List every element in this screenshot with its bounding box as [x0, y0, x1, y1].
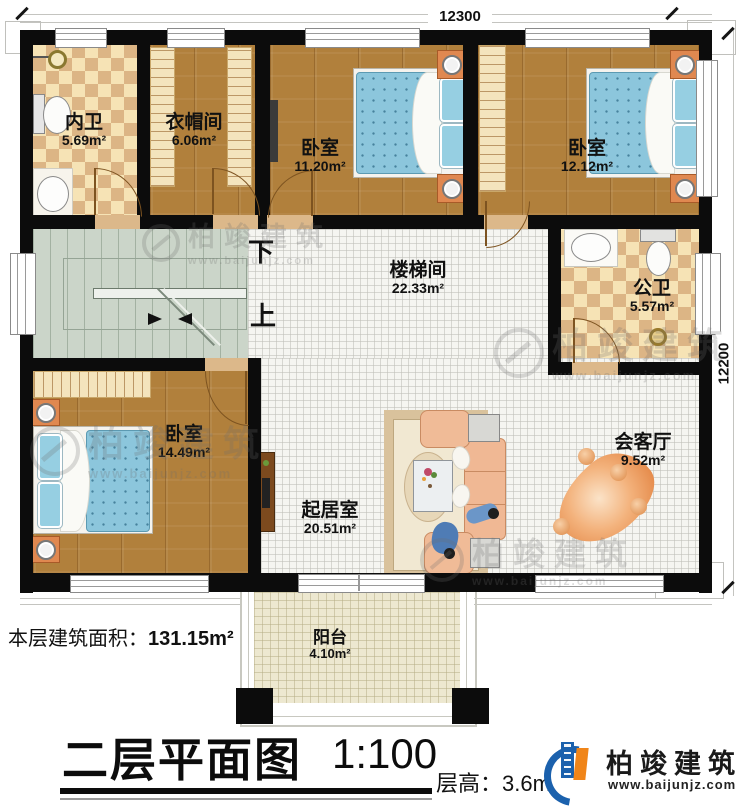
living-armchair-top — [420, 410, 470, 448]
door-leaf-neiwei — [94, 168, 96, 215]
bedroom3-pillow-1 — [38, 434, 62, 480]
plan-scale: 1:100 — [332, 730, 437, 778]
logo-company-name: 柏竣建筑 — [606, 742, 742, 781]
stairs-arrow-left — [148, 313, 162, 325]
bedroom2-wardrobe — [479, 45, 506, 192]
living-side-table-bottom — [470, 538, 500, 568]
room-name: 楼梯间 — [358, 260, 478, 281]
window-reception-bottom — [535, 575, 664, 593]
neiwei-sink-basin — [37, 176, 69, 212]
room-label-yimaojian: 衣帽间 6.06m² — [134, 112, 254, 149]
floor-area-note: 本层建筑面积：131.15m² — [8, 622, 234, 651]
wall-gongwei-left — [548, 215, 561, 375]
reception-pouf-3 — [630, 498, 647, 515]
room-name: 起居室 — [270, 500, 390, 521]
door-leaf-bedroom1 — [311, 170, 313, 216]
top-dimension-line — [20, 14, 712, 15]
person-standing-head — [444, 548, 455, 559]
room-name: 衣帽间 — [134, 112, 254, 133]
room-label-stairhall: 楼梯间 22.33m² — [358, 260, 478, 297]
window-bedroom1-top — [305, 28, 420, 48]
room-name: 阳台 — [270, 628, 390, 647]
wall-yimaojian-bedroom1 — [255, 45, 270, 215]
living-coffee-table — [413, 460, 453, 512]
window-bedroom2-right — [696, 60, 718, 197]
room-label-neiwei: 内卫 5.69m² — [24, 112, 144, 149]
bedroom3-wardrobe — [33, 371, 151, 398]
title-underline-thin — [60, 798, 432, 800]
bottom-eave-line-left-1 — [20, 598, 240, 599]
living-tv-plant — [263, 460, 269, 466]
gongwei-floor-drain — [649, 328, 667, 346]
room-name: 卧室 — [260, 138, 380, 159]
window-yimaojian-top — [167, 28, 225, 48]
dimension-top-value: 12300 — [428, 8, 492, 25]
balcony-sliding-door — [298, 574, 425, 593]
stairs-arrow-right — [178, 313, 192, 325]
person-on-sofa-head — [488, 508, 499, 519]
bedroom1-bed-sheet — [412, 72, 442, 174]
door-gap-neiwei — [95, 215, 140, 229]
neiwei-towel-ring — [48, 50, 67, 69]
balcony-column-right — [452, 688, 489, 724]
bedroom2-bed-sheet — [645, 72, 675, 174]
room-area: 11.20m² — [260, 159, 380, 175]
room-area: 22.33m² — [358, 281, 478, 297]
stairs-down-label: 下 — [244, 238, 278, 267]
floor-plan-canvas: 12300 12200 下 上 — [0, 0, 750, 806]
bottom-eave-line-left-2 — [20, 604, 240, 605]
room-label-balcony: 阳台 4.10m² — [270, 628, 390, 662]
wall-bedroom3-living — [248, 358, 261, 573]
top-eave-line — [20, 22, 712, 23]
room-label-bedroom1: 卧室 11.20m² — [260, 138, 380, 175]
room-name: 卧室 — [527, 138, 647, 159]
dimension-right-value: 12200 — [716, 332, 733, 396]
reception-pouf-4 — [553, 518, 570, 535]
room-area: 12.12m² — [527, 159, 647, 175]
door-gap-bedroom3 — [205, 358, 248, 371]
living-tv — [262, 478, 270, 508]
room-area: 5.57m² — [592, 299, 712, 315]
gongwei-sink-basin — [571, 233, 611, 262]
room-name: 内卫 — [24, 112, 144, 133]
room-area: 6.06m² — [134, 133, 254, 149]
right-dimension-line — [733, 30, 734, 596]
room-label-reception: 会客厅 9.52m² — [583, 432, 703, 469]
living-sofa-main — [464, 438, 506, 540]
room-area: 9.52m² — [583, 453, 703, 469]
bottom-eave-line-right-2 — [474, 604, 712, 605]
bedroom3-bed-sheet — [60, 430, 90, 532]
window-neiwei-top — [55, 28, 107, 48]
room-name: 卧室 — [124, 424, 244, 445]
bedroom3-nightstand-bottom — [31, 536, 60, 563]
room-area: 14.49m² — [124, 445, 244, 461]
room-name: 公卫 — [592, 278, 712, 299]
door-leaf-yimaojian — [212, 168, 214, 214]
floor-area-value: 131.15m² — [148, 628, 234, 650]
title-underline-thick — [60, 788, 432, 794]
balcony-column-left — [236, 688, 273, 724]
balcony-sliding-door-divider — [358, 574, 360, 591]
room-name: 会客厅 — [583, 432, 703, 453]
bedroom3-pillow-2 — [38, 482, 62, 528]
room-label-bedroom3: 卧室 14.49m² — [124, 424, 244, 461]
room-area: 20.51m² — [270, 521, 390, 537]
room-area: 5.69m² — [24, 133, 144, 149]
living-side-table-top — [468, 414, 500, 442]
room-label-bedroom2: 卧室 12.12m² — [527, 138, 647, 175]
living-table-flowers — [424, 468, 432, 476]
floor-area-label: 本层建筑面积： — [8, 628, 148, 650]
logo-website: www.baijunjz.com — [608, 777, 736, 792]
stairs-up-label: 上 — [246, 302, 280, 331]
window-bedroom3-bottom — [70, 575, 209, 593]
door-leaf-bedroom2 — [485, 201, 487, 246]
window-stairs-left — [10, 253, 36, 335]
bedroom3-nightstand-top — [31, 399, 60, 426]
floor-height-note: 层高：3.6m — [436, 766, 551, 798]
room-label-gongwei: 公卫 5.57m² — [592, 278, 712, 315]
door-leaf-bedroom3 — [245, 371, 247, 424]
logo-building-blue-icon — [561, 742, 574, 778]
gongwei-toilet-bowl — [646, 241, 671, 276]
room-area: 4.10m² — [270, 647, 390, 662]
company-logo: 柏竣建筑 www.baijunjz.com — [542, 738, 742, 800]
door-gap-yimaojian — [213, 215, 258, 229]
page-title: 二层平面图 — [62, 724, 302, 790]
wall-bedroom1-bedroom2 — [463, 45, 478, 218]
door-leaf-gongwei — [573, 318, 575, 363]
window-bedroom2-top — [525, 28, 650, 48]
room-label-living: 起居室 20.51m² — [270, 500, 390, 537]
